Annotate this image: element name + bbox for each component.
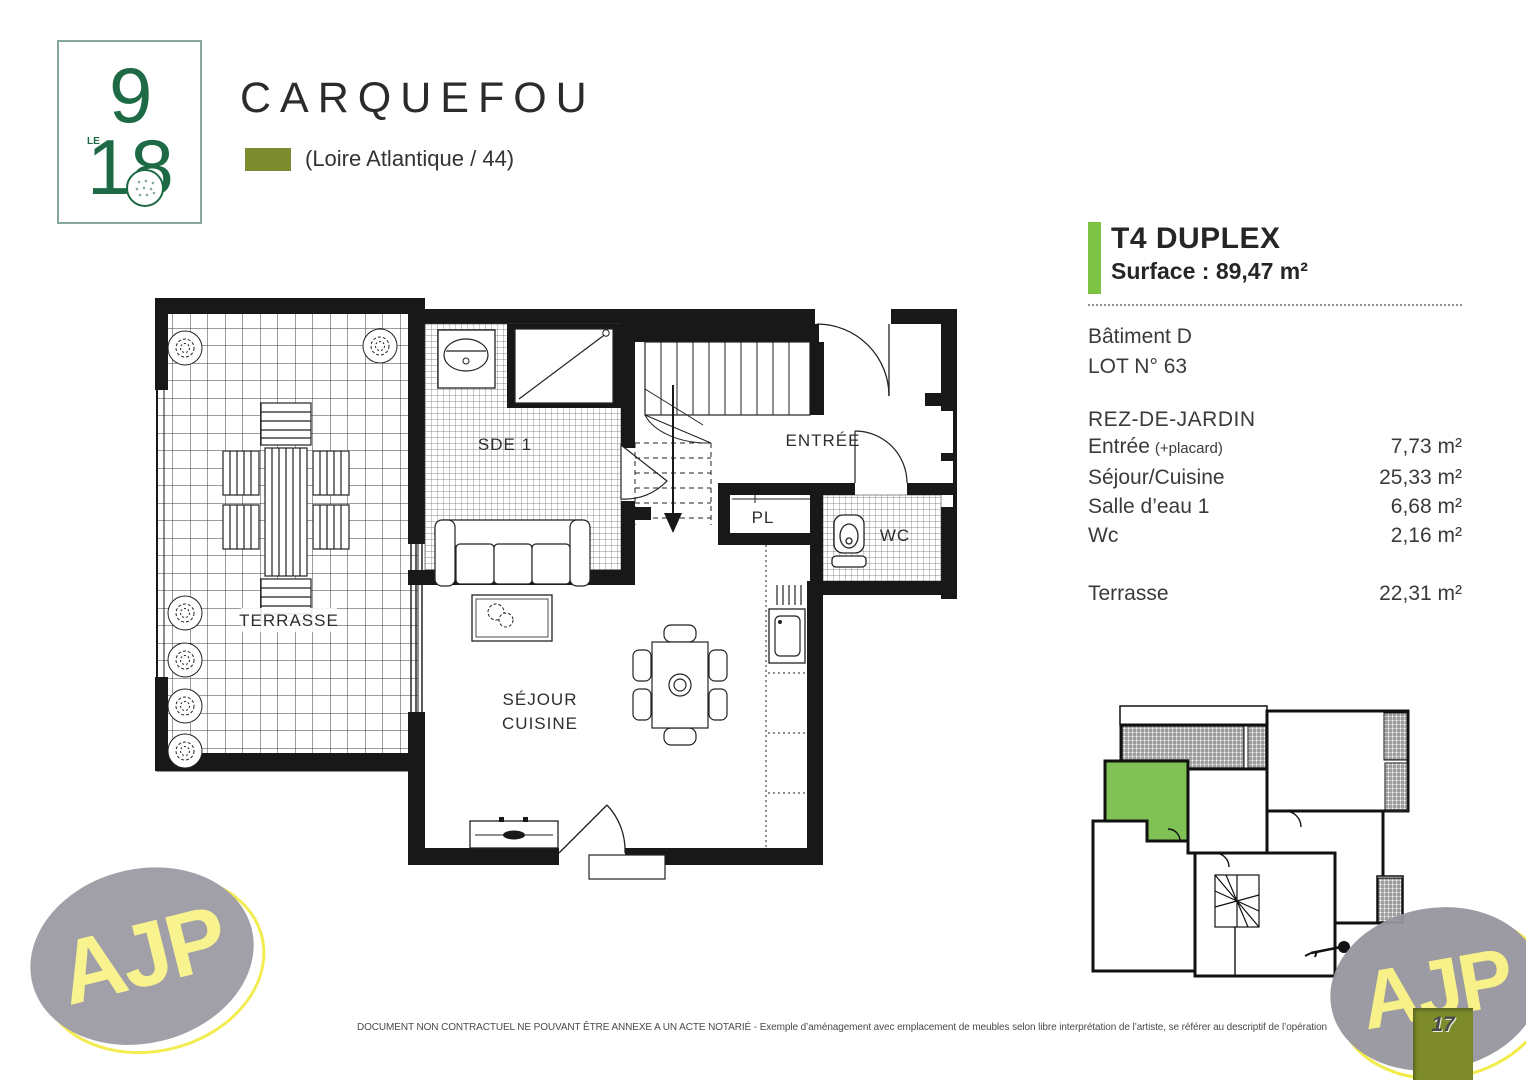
ajp-logo-left: AJP (8, 852, 288, 1074)
location-text: (Loire Atlantique / 44) (305, 146, 514, 172)
shower-icon (507, 324, 621, 408)
building-label: Bâtiment D (1088, 322, 1462, 352)
le-9-18-logo: 9 LE 18 (57, 40, 202, 224)
sde1-door (621, 445, 667, 499)
wc-door-arc (855, 431, 907, 483)
floor-plan: TERRASSE (155, 293, 965, 883)
sejour-label: SÉJOUR (503, 690, 578, 709)
room-note: (+placard) (1155, 440, 1223, 457)
cuisine-label: CUISINE (502, 714, 578, 733)
terrasse-label: TERRASSE (239, 611, 339, 630)
lot-label: LOT N° 63 (1088, 352, 1462, 382)
unit-type: T4 DUPLEX (1111, 222, 1308, 256)
kitchen-counter (766, 545, 807, 848)
sink-icon (438, 330, 495, 388)
location-row: (Loire Atlantique / 44) (245, 146, 514, 172)
level-label: REZ-DE-JARDIN (1088, 408, 1462, 432)
room-area: 6,68 m² (1391, 492, 1462, 521)
room-name: Terrasse (1088, 579, 1169, 608)
room-area: 25,33 m² (1379, 463, 1462, 492)
room-name: Salle d’eau 1 (1088, 492, 1209, 521)
room-name: Entrée (1088, 435, 1150, 458)
brochure-page: 9 LE 18 CARQUEFOU (Loire Atlantique / 44… (0, 0, 1526, 1080)
garden-door-arc (607, 805, 625, 853)
room-row-wc: Wc 2,16 m² (1088, 521, 1462, 550)
pl-label: PL (752, 508, 775, 527)
unit-surface: Surface : 89,47 m² (1111, 256, 1308, 286)
stair-direction-arrow (664, 513, 682, 533)
dotted-divider (1088, 304, 1462, 306)
room-name: Wc (1088, 521, 1118, 550)
wc-room: WC (810, 431, 957, 595)
page-number: 17 (1413, 1013, 1473, 1037)
page-number-bar: 17 (1413, 1008, 1473, 1080)
spiral-stair-icon (1215, 875, 1259, 927)
room-row-sejour: Séjour/Cuisine 25,33 m² (1088, 463, 1462, 492)
room-row-salle-eau: Salle d’eau 1 6,68 m² (1088, 492, 1462, 521)
olive-swatch (245, 148, 291, 171)
unit-info-panel: T4 DUPLEX Surface : 89,47 m² Bâtiment D … (1088, 222, 1462, 608)
coffee-table-icon (472, 595, 552, 641)
toilet-icon (832, 515, 866, 567)
sde1-label: SDE 1 (478, 435, 532, 454)
room-area: 22,31 m² (1379, 579, 1462, 608)
disclaimer-text: DOCUMENT NON CONTRACTUEL NE POUVANT ÊTRE… (357, 1022, 1417, 1033)
room-row-entree: Entrée(+placard) 7,73 m² (1088, 432, 1462, 463)
dining-table-icon (633, 625, 727, 745)
room-area: 7,73 m² (1391, 432, 1462, 463)
wc-label: WC (880, 526, 910, 545)
room-row-terrasse: Terrasse 22,31 m² (1088, 579, 1462, 608)
room-area: 2,16 m² (1391, 521, 1462, 550)
room-name: Séjour/Cuisine (1088, 463, 1225, 492)
page-title: CARQUEFOU (240, 74, 596, 123)
sideboard-icon (470, 817, 558, 848)
le-9-18-logo-art: 9 LE 18 (59, 42, 196, 218)
placard: PL (718, 483, 818, 545)
unit-header: T4 DUPLEX Surface : 89,47 m² (1088, 222, 1462, 294)
entree-label: ENTRÉE (786, 431, 861, 450)
sofa-icon (435, 520, 590, 586)
entry-door-arc (817, 324, 889, 396)
golf-ball-icon (127, 170, 163, 206)
green-accent-bar (1088, 222, 1101, 294)
